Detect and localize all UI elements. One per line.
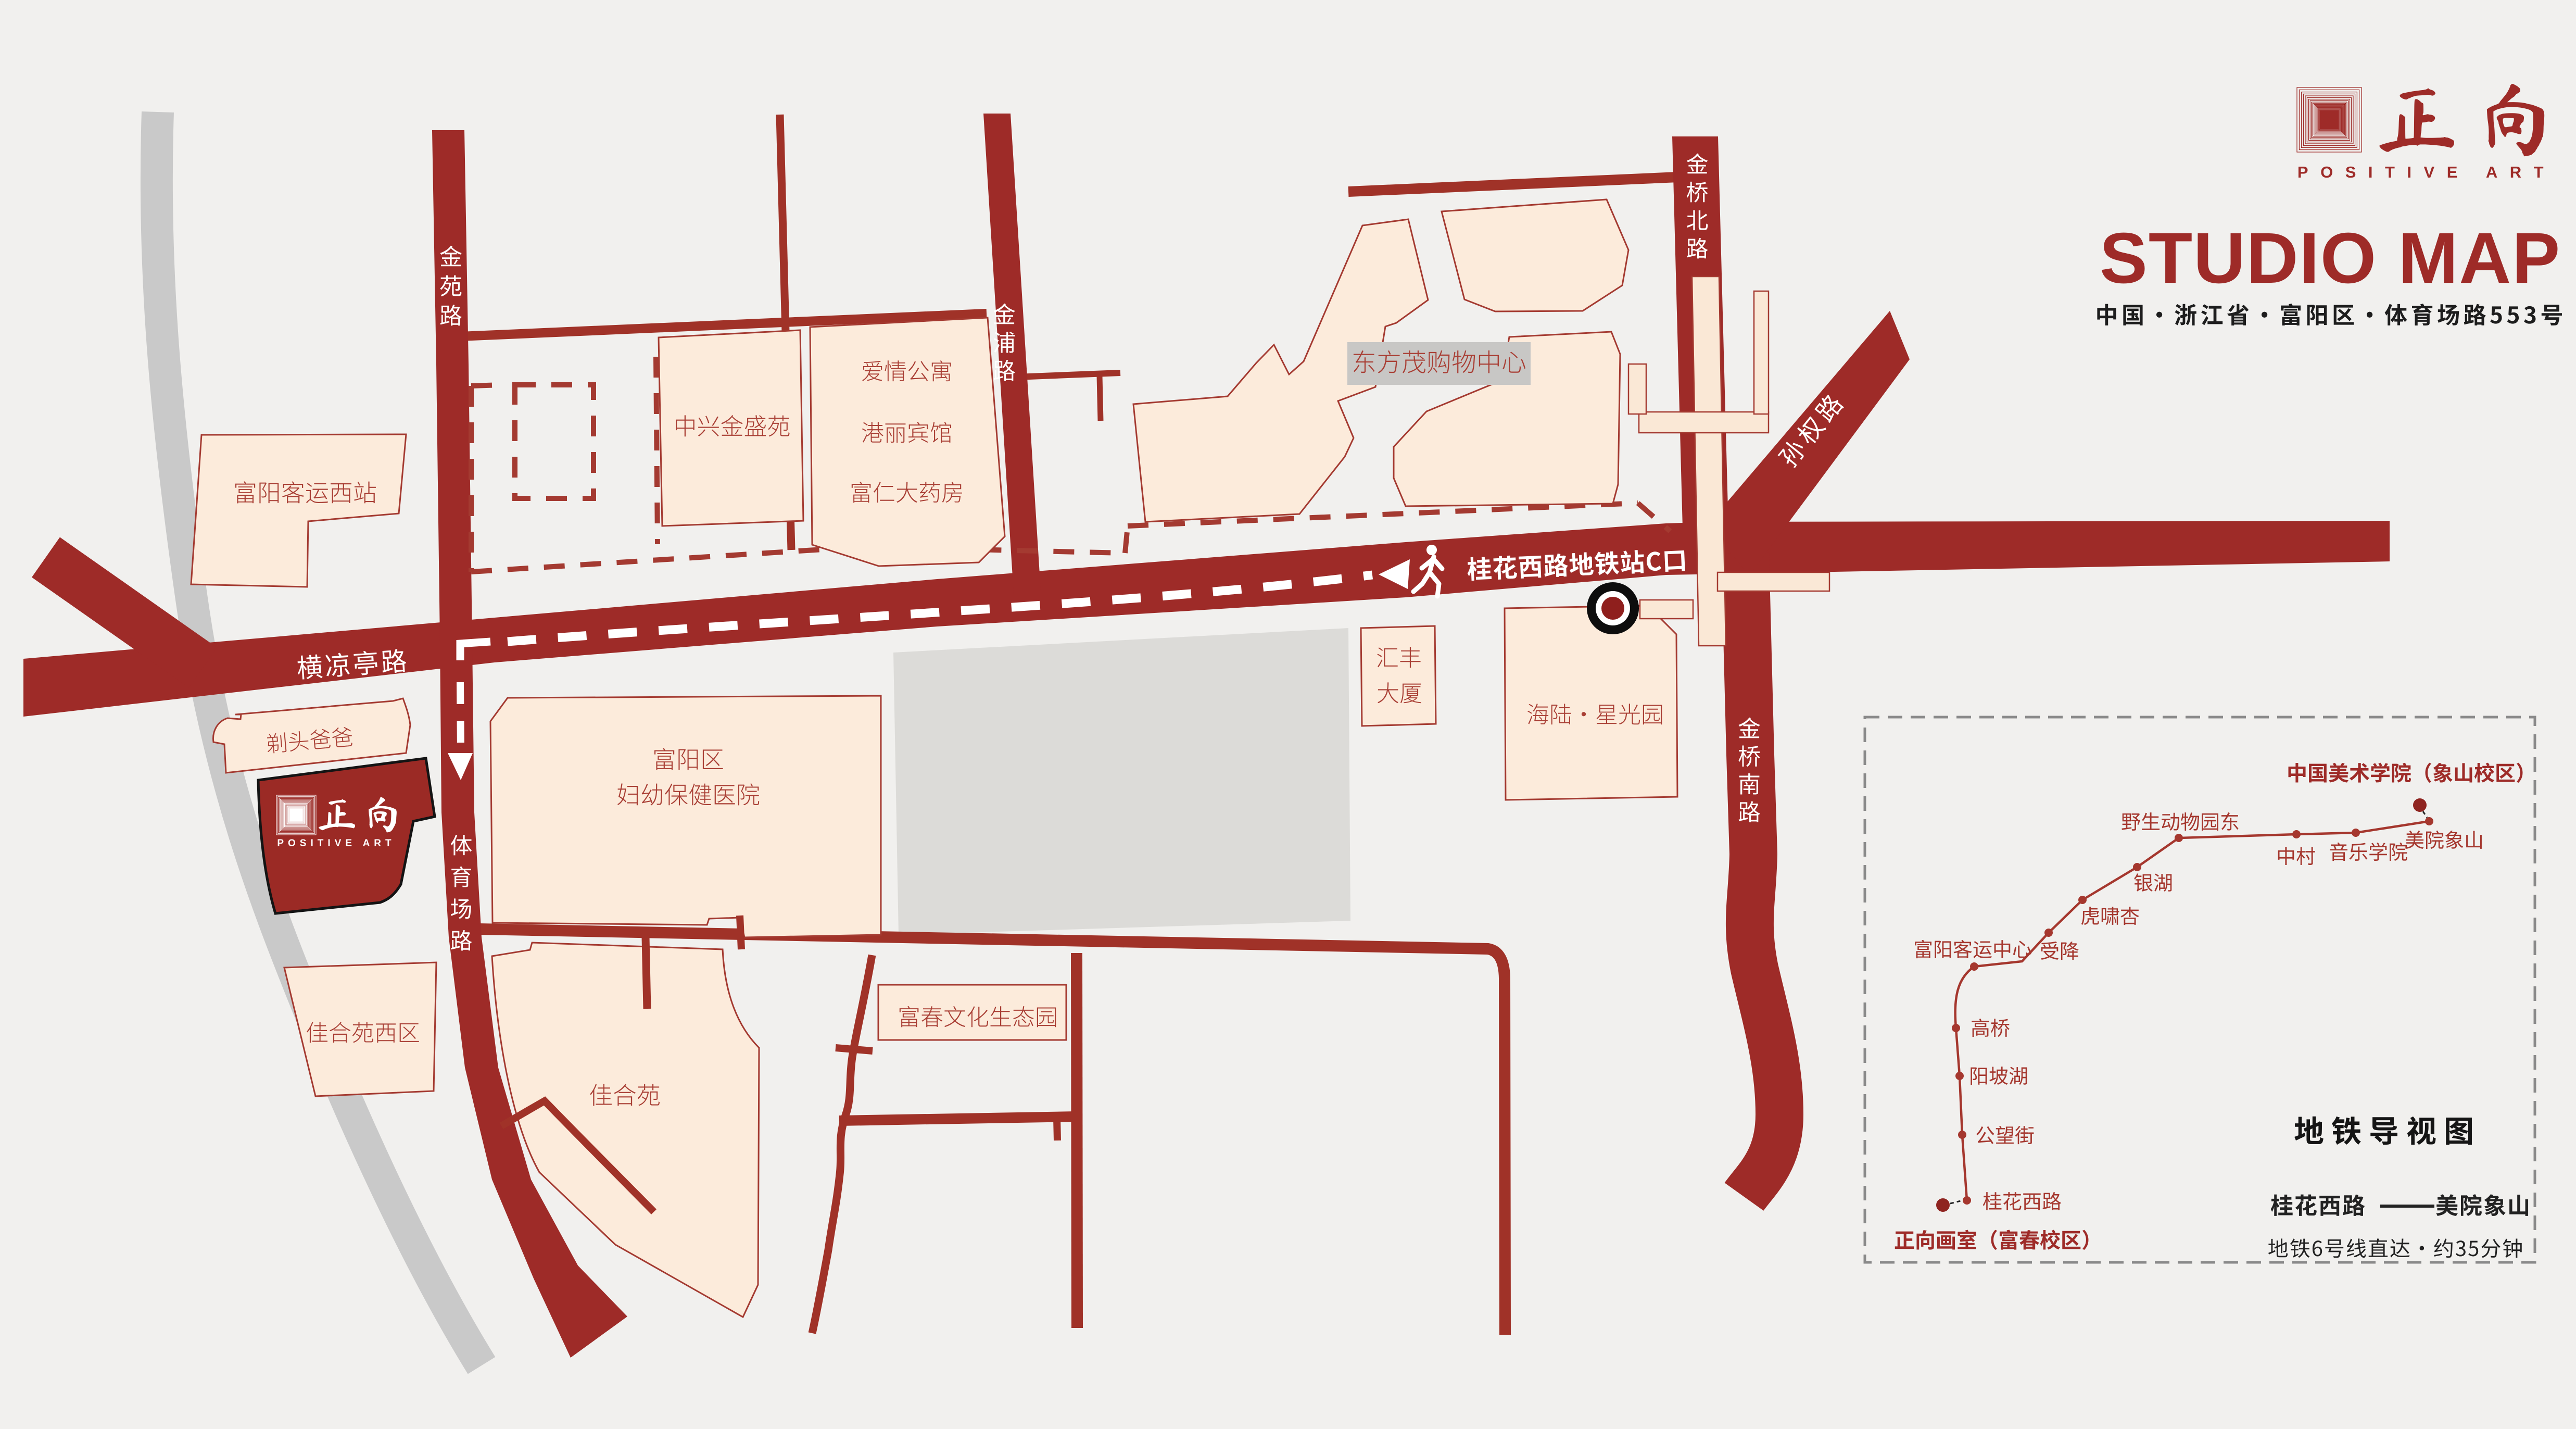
svg-text:STUDIO MAP: STUDIO MAP [2100, 218, 2561, 298]
svg-text:POSITIVE ART: POSITIVE ART [277, 838, 395, 849]
svg-text:POSITIVE ART: POSITIVE ART [2297, 163, 2556, 181]
